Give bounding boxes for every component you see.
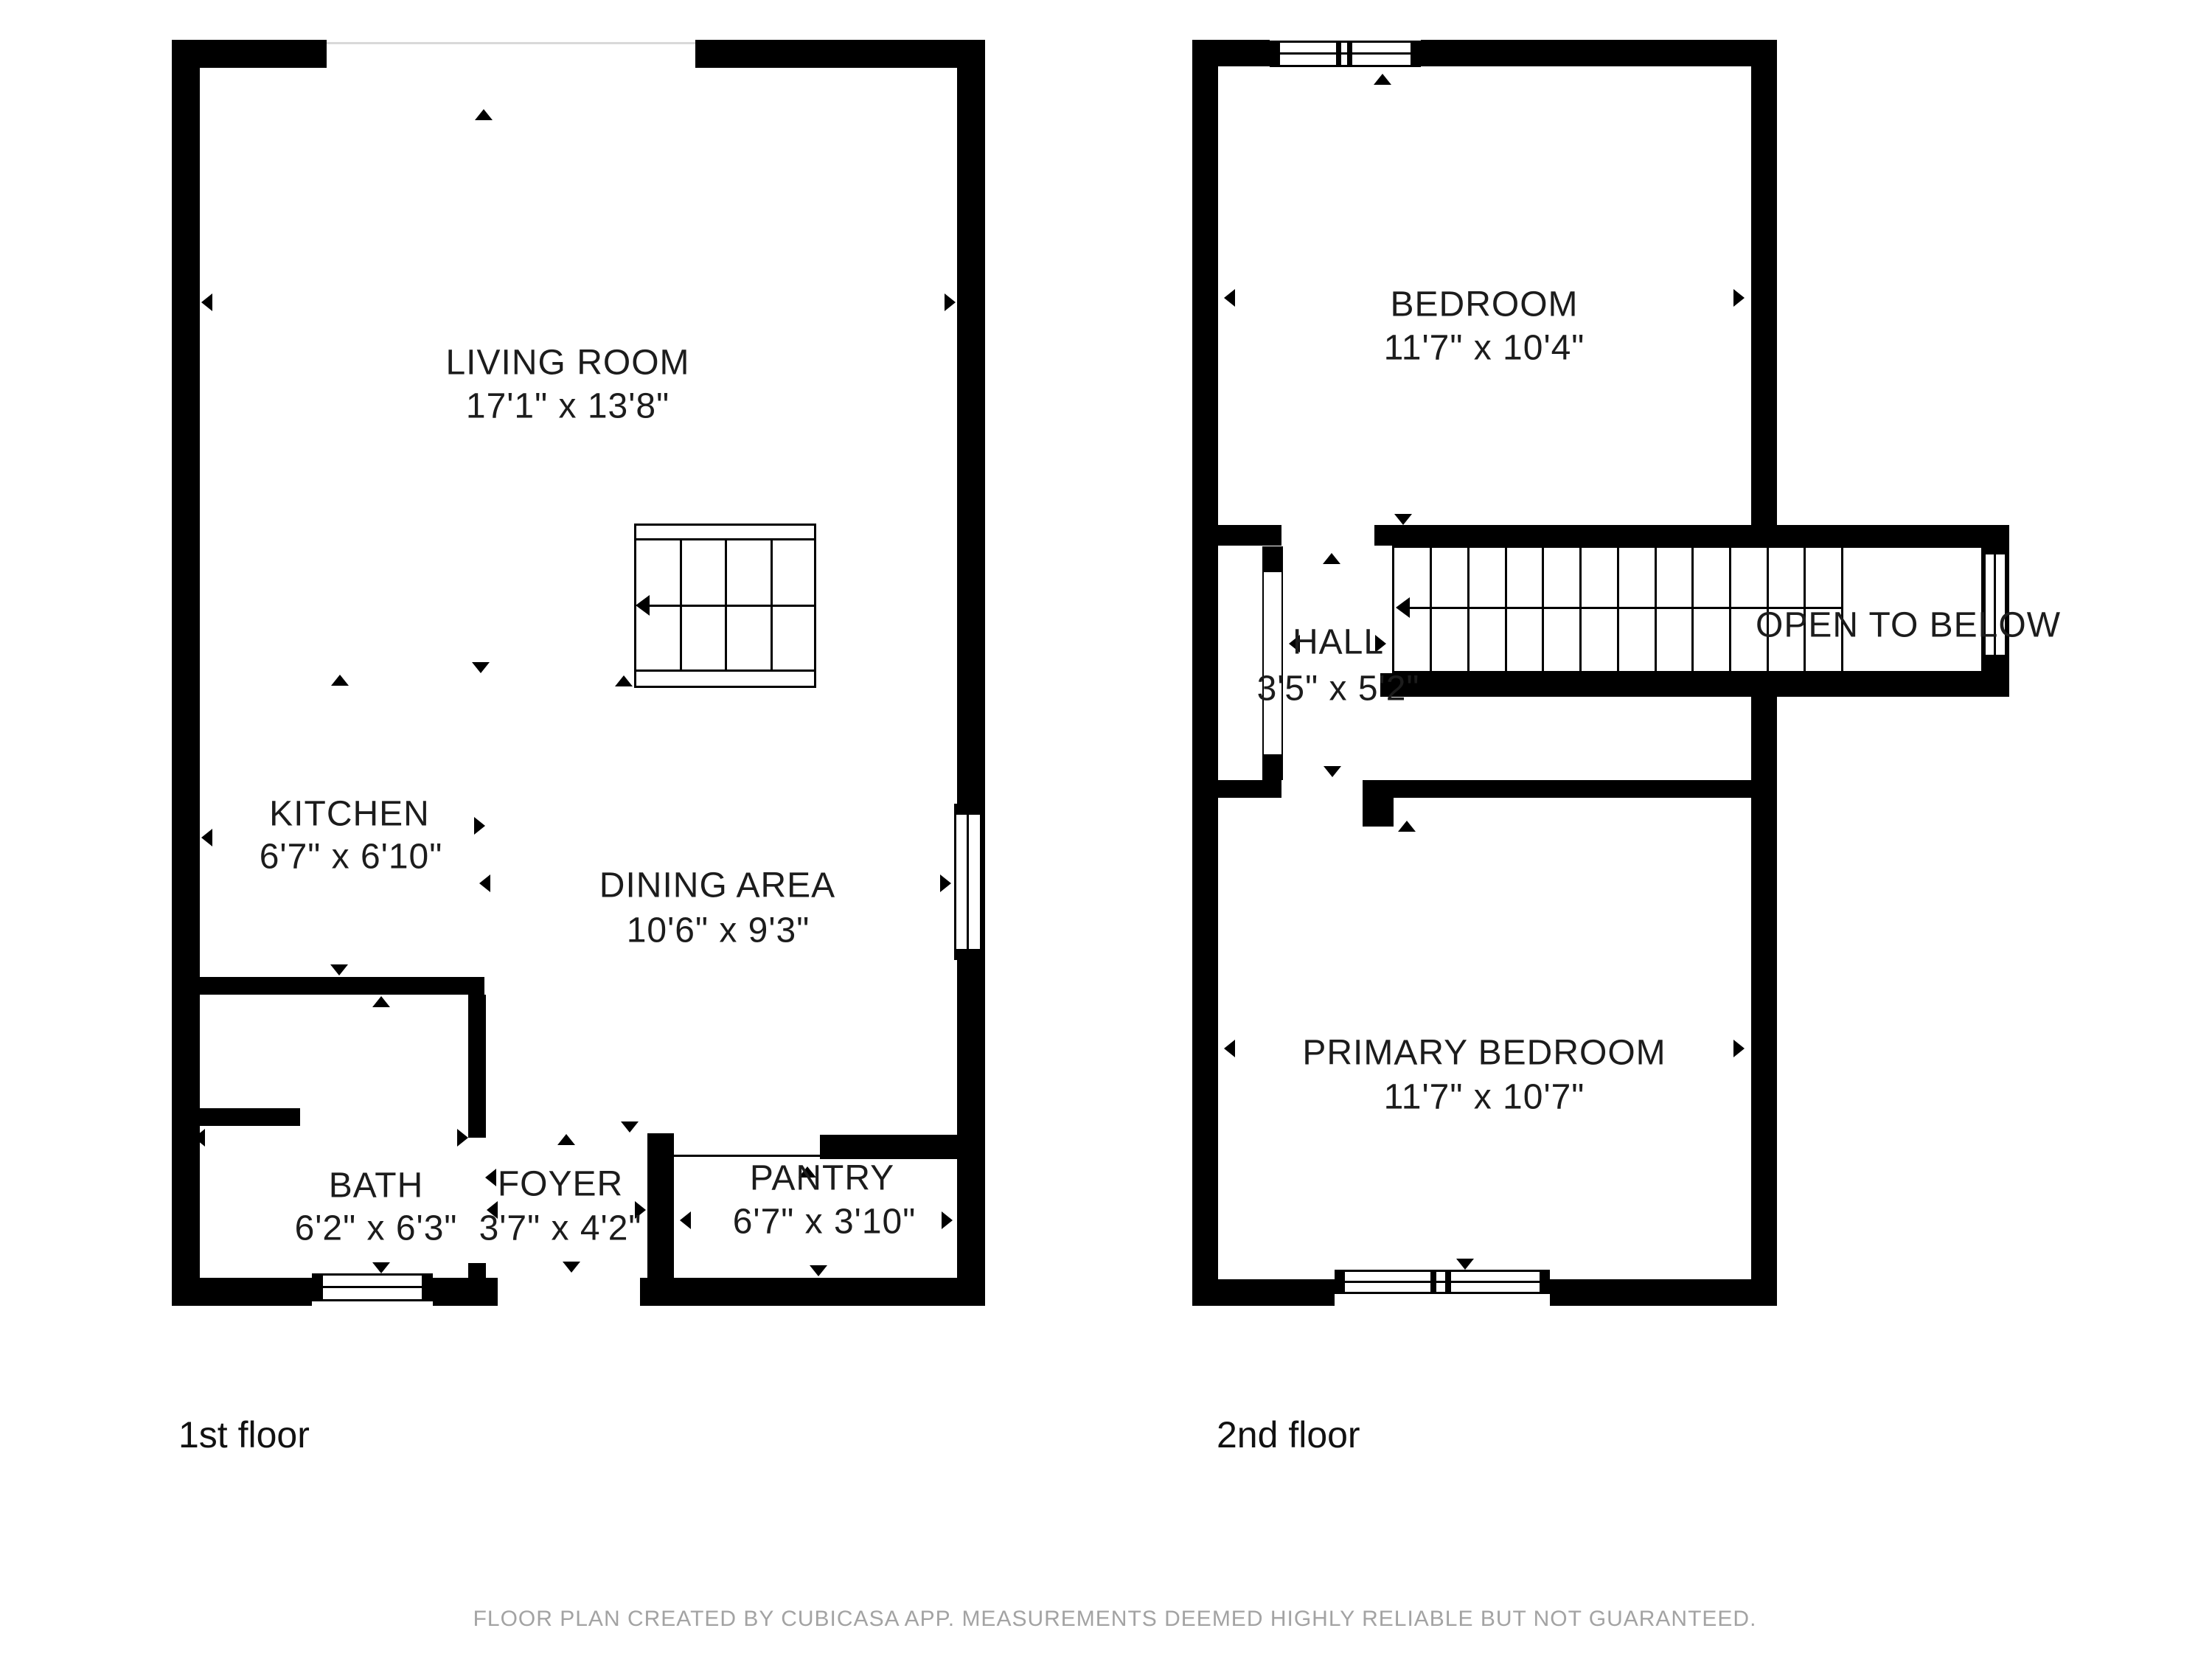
room-label-pantry: PANTRY (750, 1158, 894, 1199)
open-to-below-label: OPEN TO BELOW (1756, 605, 2061, 646)
disclaimer-text: FLOOR PLAN CREATED BY CUBICASA APP. MEAS… (473, 1607, 1757, 1632)
room-label-foyer: FOYER (498, 1164, 623, 1205)
railing (1262, 546, 1283, 780)
window-mullion (1445, 1270, 1451, 1294)
wall (172, 977, 484, 995)
door-arrow-icon (1324, 766, 1341, 777)
window-mullion (1336, 41, 1341, 67)
wall (1550, 1279, 1777, 1306)
door-arrow-icon (330, 964, 348, 975)
door-arrow-icon (479, 874, 490, 892)
room-label-bedroom: BEDROOM (1390, 285, 1578, 325)
room-dims-living: 17'1" x 13'8" (466, 386, 669, 427)
room-label-hall: HALL (1293, 622, 1384, 663)
window-pane-line (323, 1286, 422, 1288)
wall-opening (327, 42, 695, 44)
door-arrow-icon (1224, 1040, 1235, 1057)
wall (1363, 780, 1394, 827)
room-dims-bath: 6'2" x 6'3" (295, 1208, 458, 1249)
stair-tread-line (1655, 548, 1657, 671)
stair-tread-line (1617, 548, 1619, 671)
door-arrow-icon (201, 829, 212, 846)
door-arrow-icon (810, 1265, 827, 1276)
wall (468, 995, 486, 1138)
room-label-bath: BATH (329, 1166, 423, 1206)
door-arrow-icon (372, 996, 390, 1007)
wall (640, 1278, 985, 1306)
door-arrow-icon (1733, 1040, 1745, 1057)
floor2-label: 2nd floor (1217, 1413, 1360, 1456)
window-cap (954, 949, 982, 960)
door-arrow-icon (1456, 1259, 1474, 1270)
window-mullion (1347, 41, 1352, 67)
wall (1374, 525, 1777, 546)
door-arrow-icon (475, 109, 493, 120)
doorway-line (674, 1155, 820, 1157)
room-dims-primary: 11'7" x 10'7" (1384, 1077, 1585, 1118)
window-mullion (1430, 1270, 1436, 1294)
wall (695, 40, 985, 68)
stair-direction-arrow-icon (636, 595, 650, 616)
wall (468, 1263, 486, 1278)
window-cap (1983, 655, 2007, 665)
stair-edge-line (1392, 546, 1981, 548)
door-arrow-icon (1398, 821, 1416, 832)
railing-cap (1262, 754, 1283, 780)
wall (172, 1278, 312, 1306)
wall (1421, 40, 1777, 66)
door-arrow-icon (457, 1129, 468, 1147)
window-cap (422, 1273, 433, 1301)
window-cap (1270, 41, 1280, 67)
door-arrow-icon (1374, 74, 1391, 85)
wall (957, 40, 985, 1306)
room-label-primary: PRIMARY BEDROOM (1302, 1033, 1666, 1074)
door-arrow-icon (1394, 514, 1412, 525)
window-pane-line (967, 815, 969, 949)
wall (1192, 1279, 1335, 1306)
window-cap (1335, 1270, 1345, 1294)
door-arrow-icon (472, 662, 490, 673)
window-cap (1411, 41, 1421, 67)
door-arrow-icon (194, 1129, 205, 1147)
wall (172, 40, 327, 68)
wall (1192, 40, 1270, 66)
wall (1363, 780, 1777, 798)
room-dims-pantry: 6'7" x 3'10" (733, 1202, 917, 1242)
room-label-kitchen: KITCHEN (269, 794, 430, 835)
door-arrow-icon (1733, 289, 1745, 307)
railing-cap (1262, 546, 1283, 572)
window-cap (954, 804, 982, 815)
wall (1192, 780, 1281, 798)
door-arrow-icon (563, 1262, 580, 1273)
room-label-living: LIVING ROOM (445, 343, 689, 383)
room-dims-foyer: 3'7" x 4'2" (479, 1208, 642, 1249)
stair-direction-line (647, 605, 815, 607)
wall (647, 1133, 674, 1278)
stair-landing-line (636, 669, 814, 672)
wall (1192, 525, 1281, 546)
door-arrow-icon (1323, 553, 1340, 564)
door-arrow-icon (201, 293, 212, 311)
door-arrow-icon (331, 675, 349, 686)
wall (1192, 40, 1218, 1306)
wall (1751, 40, 1777, 526)
stair-tread-line (1505, 548, 1507, 671)
door-arrow-icon (940, 874, 951, 892)
stair-tread-line (1579, 548, 1582, 671)
door-arrow-icon (680, 1211, 691, 1229)
stair-tread-line (1430, 548, 1432, 671)
window-cap (1540, 1270, 1550, 1294)
door-arrow-icon (942, 1211, 953, 1229)
stair-edge-line (1392, 671, 1981, 673)
window-cap (312, 1273, 323, 1301)
stair-tread-line (1729, 548, 1731, 671)
door-arrow-icon (945, 293, 956, 311)
floor-plan-page: LIVING ROOM 17'1" x 13'8" KITCHEN 6'7" x… (0, 0, 2212, 1659)
stair-direction-arrow-icon (1396, 597, 1410, 618)
wall (196, 1108, 300, 1126)
door-arrow-icon (474, 817, 485, 835)
door-arrow-icon (372, 1262, 390, 1273)
room-dims-dining: 10'6" x 9'3" (627, 911, 810, 951)
stair-tread-line (1467, 548, 1470, 671)
floor1-label: 1st floor (178, 1413, 310, 1456)
stair-tread-line (1542, 548, 1544, 671)
stair-tread-line (1691, 548, 1694, 671)
door-arrow-icon (621, 1121, 639, 1133)
door-arrow-icon (557, 1134, 575, 1145)
wall (1777, 525, 2009, 546)
door-arrow-icon (485, 1169, 496, 1186)
room-dims-bedroom: 11'7" x 10'4" (1384, 328, 1585, 369)
window-pane-line (1345, 1281, 1540, 1283)
room-dims-kitchen: 6'7" x 6'10" (260, 837, 443, 877)
window-cap (1983, 544, 2007, 554)
wall (433, 1278, 498, 1306)
door-arrow-icon (1224, 289, 1235, 307)
wall (1380, 673, 2009, 697)
door-arrow-icon (615, 675, 633, 686)
window-pane-line (1280, 52, 1411, 55)
room-dims-hall: 3'5" x 5'2" (1257, 669, 1420, 709)
room-label-dining: DINING AREA (599, 866, 835, 906)
stair-tread-line (1392, 548, 1394, 671)
wall (820, 1135, 985, 1159)
